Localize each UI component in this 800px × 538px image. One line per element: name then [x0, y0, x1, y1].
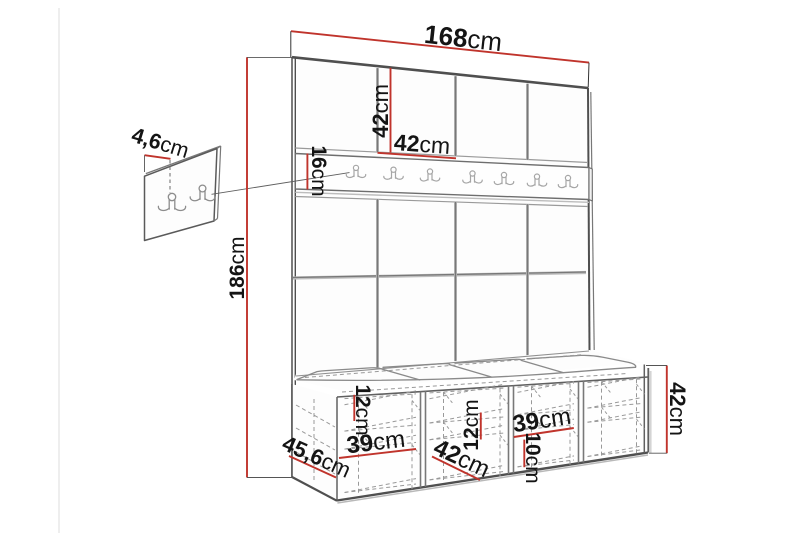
svg-text:16cm: 16cm [307, 145, 330, 196]
svg-text:12cm: 12cm [351, 384, 374, 435]
svg-text:42cm: 42cm [393, 129, 451, 159]
svg-text:42cm: 42cm [368, 84, 393, 138]
svg-text:12cm: 12cm [460, 399, 483, 450]
svg-text:42cm: 42cm [665, 382, 690, 436]
svg-text:186cm: 186cm [226, 236, 249, 299]
svg-text:10cm: 10cm [521, 432, 544, 483]
